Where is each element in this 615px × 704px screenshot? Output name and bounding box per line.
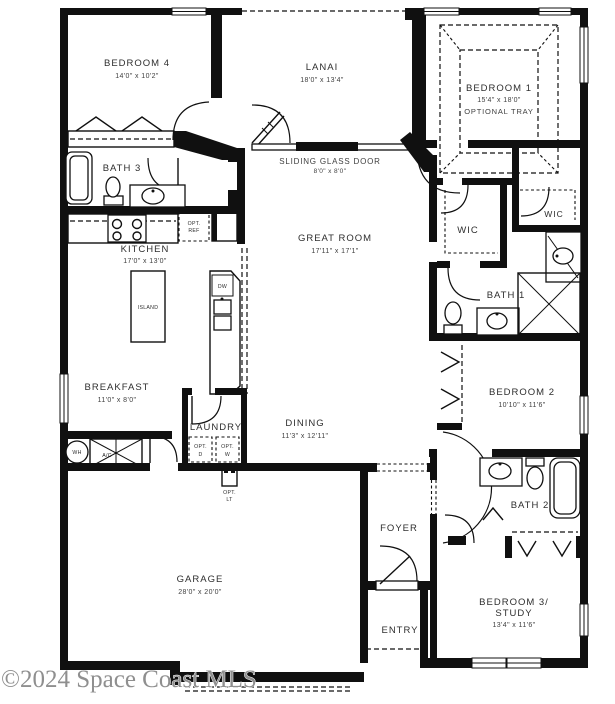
label-opt-d-line1: OPT. xyxy=(194,444,207,450)
room-dims-garage: 28'0" x 20'0" xyxy=(178,589,222,596)
label-island: ISLAND xyxy=(138,305,159,311)
room-label-wic-right: WIC xyxy=(544,209,564,219)
room-dims-bedroom3: 13'4" x 11'6" xyxy=(492,622,535,629)
room-label-laundry: LAUNDRY xyxy=(190,422,242,433)
room-dims-bedroom1: 15'4" x 18'0" xyxy=(477,97,521,104)
laundry-room xyxy=(182,388,247,486)
label-wh: WH xyxy=(72,450,81,456)
label-opt-ref-line1: OPT. xyxy=(188,221,201,227)
room-label-bath3: BATH 3 xyxy=(103,163,142,174)
room-dims-great-room: 17'11" x 17'1" xyxy=(311,248,358,255)
room-dims-kitchen: 17'0" x 13'0" xyxy=(123,258,167,265)
bath1-fixtures xyxy=(444,232,581,335)
room-dims-bedroom2: 10'10" x 11'6" xyxy=(498,402,545,409)
room-label-bedroom2: BEDROOM 2 xyxy=(489,387,555,398)
room-label-entry: ENTRY xyxy=(381,625,418,636)
room-label-foyer: FOYER xyxy=(380,523,418,534)
room-label-bedroom3-line1: BEDROOM 3/ xyxy=(479,597,549,608)
room-label-wic-left: WIC xyxy=(457,225,478,236)
label-sliding-glass-door: SLIDING GLASS DOOR xyxy=(279,157,381,166)
label-opt-lt-line2: LT xyxy=(226,497,233,503)
room-label-great-room: GREAT ROOM xyxy=(298,233,372,244)
room-dims-dining: 11'3" x 12'11" xyxy=(282,433,329,440)
room-label-lanai: LANAI xyxy=(306,62,338,73)
room-dims-breakfast: 11'0" x 8'0" xyxy=(98,397,137,404)
room-label-kitchen: KITCHEN xyxy=(121,244,170,255)
room-label-bedroom4: BEDROOM 4 xyxy=(104,58,170,69)
label-opt-w-line1: OPT. xyxy=(221,444,234,450)
floor-plan-drawing: BEDROOM 4 14'0" x 10'2" LANAI 18'0" x 13… xyxy=(0,0,615,704)
room-label-garage: GARAGE xyxy=(177,574,224,585)
watermark-text: ©2024 Space Coast MLS xyxy=(1,666,257,693)
label-ac: A/C xyxy=(102,453,112,459)
lanai-doors xyxy=(252,105,460,193)
room-label-bath2: BATH 2 xyxy=(511,500,550,511)
bedroom4-area xyxy=(68,102,237,160)
label-dw: DW xyxy=(218,284,227,290)
dims-sliding-glass-door: 8'0" x 8'0" xyxy=(314,168,347,175)
label-opt-ref-line2: REF xyxy=(188,228,199,234)
room-note-bedroom1: OPTIONAL TRAY xyxy=(464,107,533,116)
label-opt-lt-line1: OPT. xyxy=(223,490,236,496)
floor-plan: BEDROOM 4 14'0" x 10'2" LANAI 18'0" x 13… xyxy=(0,0,615,704)
label-opt-d-line2: D xyxy=(198,452,202,458)
room-label-breakfast: BREAKFAST xyxy=(85,382,150,393)
room-label-bedroom1: BEDROOM 1 xyxy=(466,83,532,94)
room-label-bedroom3-line2: STUDY xyxy=(495,608,532,619)
room-dims-bedroom4: 14'0" x 10'2" xyxy=(115,73,159,80)
label-opt-w-line2: W xyxy=(225,452,230,458)
bath3 xyxy=(60,150,238,214)
room-dims-lanai: 18'0" x 13'4" xyxy=(300,77,344,84)
room-label-bath1: BATH 1 xyxy=(487,290,526,301)
room-label-dining: DINING xyxy=(285,418,324,429)
